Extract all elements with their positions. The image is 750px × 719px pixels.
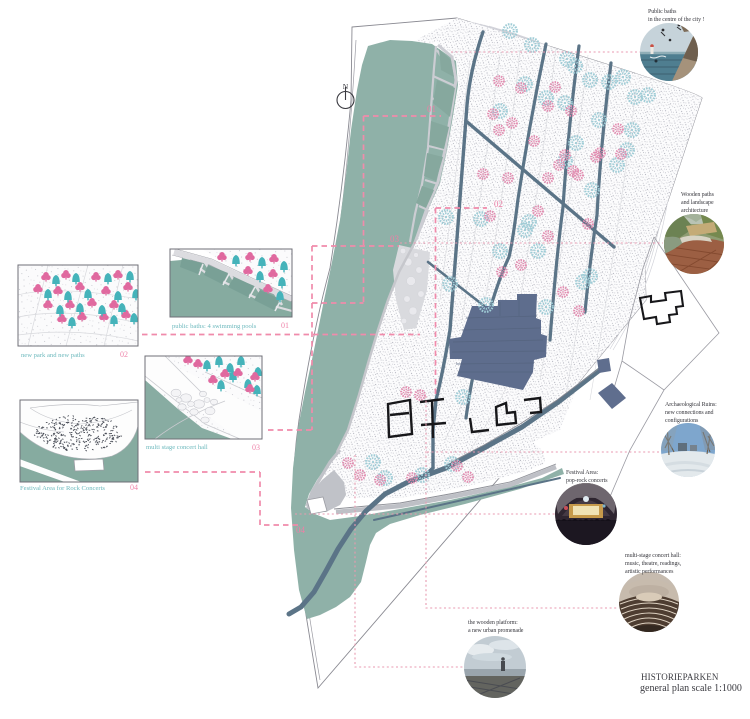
svg-text:music, theatre, readings,: music, theatre, readings, xyxy=(625,561,682,567)
svg-text:pop-rock concerts: pop-rock concerts xyxy=(566,478,608,484)
svg-text:HISTORIEPARKEN: HISTORIEPARKEN xyxy=(641,672,719,682)
svg-text:Wooden paths: Wooden paths xyxy=(681,192,715,198)
svg-text:04: 04 xyxy=(130,483,138,492)
svg-text:Festival Area:: Festival Area: xyxy=(566,470,599,476)
svg-text:multi-stage concert hall:: multi-stage concert hall: xyxy=(625,553,681,559)
svg-text:the wooden platform:: the wooden platform: xyxy=(468,619,518,626)
svg-text:artistic performances: artistic performances xyxy=(625,568,674,575)
svg-text:Archaeological Ruins:: Archaeological Ruins: xyxy=(665,402,717,408)
svg-text:01: 01 xyxy=(427,104,436,114)
svg-text:architecture: architecture xyxy=(681,208,709,214)
svg-text:multi stage concert hall: multi stage concert hall xyxy=(146,444,208,451)
svg-text:general plan scale 1:1000: general plan scale 1:1000 xyxy=(640,683,742,694)
svg-text:Public baths: Public baths xyxy=(648,9,677,15)
svg-text:N: N xyxy=(343,82,349,91)
svg-text:04: 04 xyxy=(296,525,306,535)
svg-text:03: 03 xyxy=(252,443,260,452)
svg-text:02: 02 xyxy=(494,199,503,209)
svg-text:public baths: 4 swimming pools: public baths: 4 swimming pools xyxy=(172,323,257,330)
svg-text:in the centre of the city !: in the centre of the city ! xyxy=(648,16,704,23)
svg-text:new park and new paths: new park and new paths xyxy=(21,352,85,359)
svg-text:new connections and: new connections and xyxy=(665,410,714,416)
svg-text:a new urban promenade: a new urban promenade xyxy=(468,628,524,634)
svg-text:01: 01 xyxy=(281,321,289,330)
svg-text:02: 02 xyxy=(120,350,128,359)
svg-text:configurations: configurations xyxy=(665,417,699,424)
svg-text:and landscape: and landscape xyxy=(681,200,714,206)
svg-text:03: 03 xyxy=(390,234,400,244)
svg-text:Festival Area for Rock Concert: Festival Area for Rock Concerts xyxy=(20,485,105,492)
